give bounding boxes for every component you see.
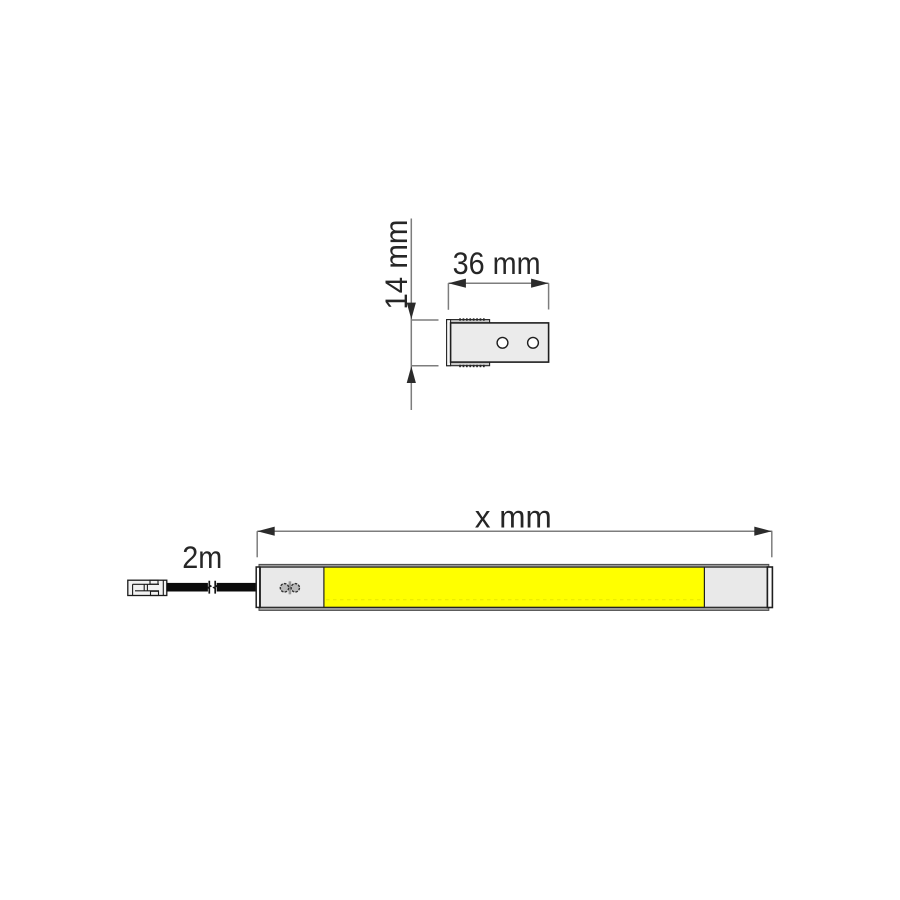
svg-text:x mm: x mm [475, 499, 552, 535]
svg-text:2m: 2m [182, 539, 222, 575]
svg-text:14 mm: 14 mm [378, 220, 414, 310]
svg-text:36 mm: 36 mm [453, 245, 541, 281]
